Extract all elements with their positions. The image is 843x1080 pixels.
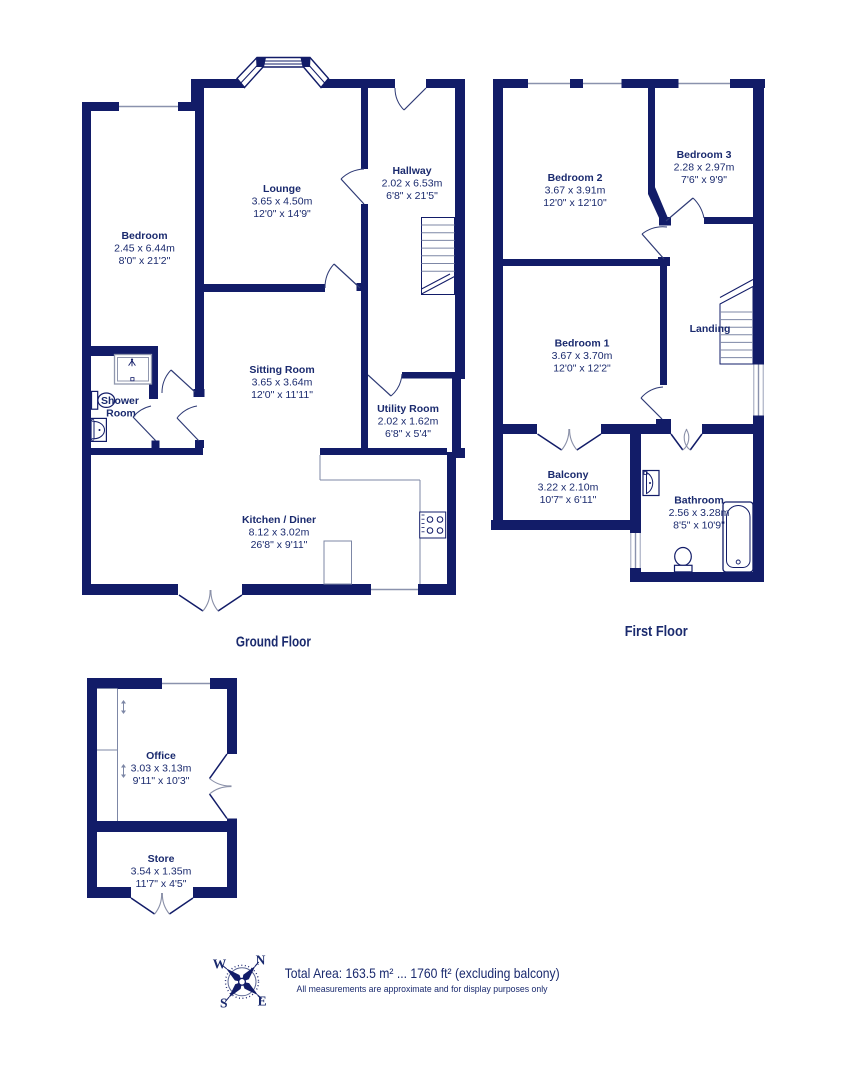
svg-text:11'7" x 4'5": 11'7" x 4'5" [136,878,187,890]
svg-text:Shower: Shower [101,395,139,407]
svg-text:Office: Office [146,750,176,762]
svg-text:W: W [213,957,227,972]
svg-text:All measurements are approxima: All measurements are approximate and for… [297,984,548,995]
svg-text:6'8" x 5'4": 6'8" x 5'4" [385,428,431,440]
svg-text:3.67 x 3.70m: 3.67 x 3.70m [552,350,613,362]
svg-text:26'8" x 9'11": 26'8" x 9'11" [251,539,308,551]
svg-text:Bedroom 2: Bedroom 2 [548,172,603,184]
svg-text:8'0" x 21'2": 8'0" x 21'2" [119,255,171,267]
svg-text:E: E [258,994,267,1009]
svg-text:Store: Store [148,853,175,865]
svg-text:S: S [220,996,228,1011]
svg-text:Lounge: Lounge [263,183,301,195]
svg-text:First Floor: First Floor [625,623,688,640]
svg-text:3.65 x 3.64m: 3.65 x 3.64m [252,377,313,389]
svg-text:Kitchen / Diner: Kitchen / Diner [242,514,316,526]
svg-text:Bathroom: Bathroom [674,495,724,507]
svg-text:12'0" x 12'10": 12'0" x 12'10" [543,197,607,209]
svg-text:3.65 x 4.50m: 3.65 x 4.50m [252,196,313,208]
svg-text:3.54 x 1.35m: 3.54 x 1.35m [131,866,192,878]
svg-text:2.02 x 6.53m: 2.02 x 6.53m [382,178,443,190]
svg-text:Landing: Landing [690,323,731,335]
svg-text:12'0" x 14'9": 12'0" x 14'9" [253,208,311,220]
svg-text:2.45 x 6.44m: 2.45 x 6.44m [114,243,175,255]
svg-text:Room: Room [106,408,136,420]
svg-text:2.28 x 2.97m: 2.28 x 2.97m [674,162,735,174]
svg-text:2.02 x 1.62m: 2.02 x 1.62m [378,416,439,428]
svg-text:N: N [256,952,266,967]
svg-text:Ground Floor: Ground Floor [236,634,311,651]
svg-text:Hallway: Hallway [392,165,431,177]
svg-text:Bedroom 3: Bedroom 3 [677,149,732,161]
svg-text:8.12 x 3.02m: 8.12 x 3.02m [249,527,310,539]
svg-text:Total Area: 163.5 m² ... 1760: Total Area: 163.5 m² ... 1760 ft² (exclu… [285,966,560,981]
svg-text:Bedroom 1: Bedroom 1 [555,338,610,350]
svg-text:7'6" x 9'9": 7'6" x 9'9" [681,174,727,186]
svg-text:10'7" x 6'11": 10'7" x 6'11" [540,494,597,506]
svg-text:Bedroom: Bedroom [121,230,167,242]
svg-text:Sitting Room: Sitting Room [249,364,314,376]
svg-text:Balcony: Balcony [548,469,589,481]
svg-text:2.56 x 3.28m: 2.56 x 3.28m [669,507,730,519]
svg-text:3.67 x 3.91m: 3.67 x 3.91m [545,185,606,197]
svg-text:3.03 x 3.13m: 3.03 x 3.13m [131,763,192,775]
svg-text:Utility Room: Utility Room [377,403,439,415]
svg-text:3.22 x 2.10m: 3.22 x 2.10m [538,482,599,494]
svg-text:9'11" x 10'3": 9'11" x 10'3" [133,775,190,787]
svg-text:8'5" x 10'9": 8'5" x 10'9" [673,520,725,532]
svg-text:12'0" x 12'2": 12'0" x 12'2" [553,363,611,375]
svg-text:6'8" x 21'5": 6'8" x 21'5" [386,190,438,202]
svg-text:12'0" x 11'11": 12'0" x 11'11" [251,389,313,401]
